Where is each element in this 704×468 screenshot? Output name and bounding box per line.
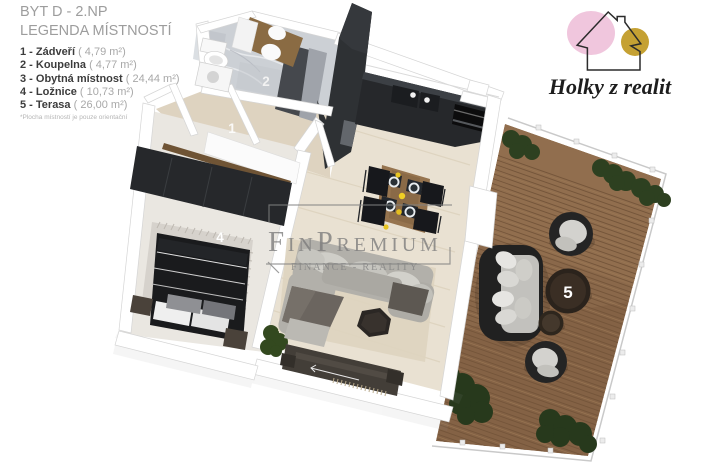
svg-text:Holky z realit: Holky z realit: [548, 74, 672, 99]
svg-text:5: 5: [563, 283, 572, 302]
svg-text:1: 1: [228, 121, 236, 136]
svg-text:2: 2: [262, 74, 270, 89]
svg-text:4: 4: [216, 230, 224, 245]
svg-text:FINANCE - REALITY: FINANCE - REALITY: [291, 262, 419, 273]
svg-text:FinPremium: FinPremium: [268, 226, 442, 258]
